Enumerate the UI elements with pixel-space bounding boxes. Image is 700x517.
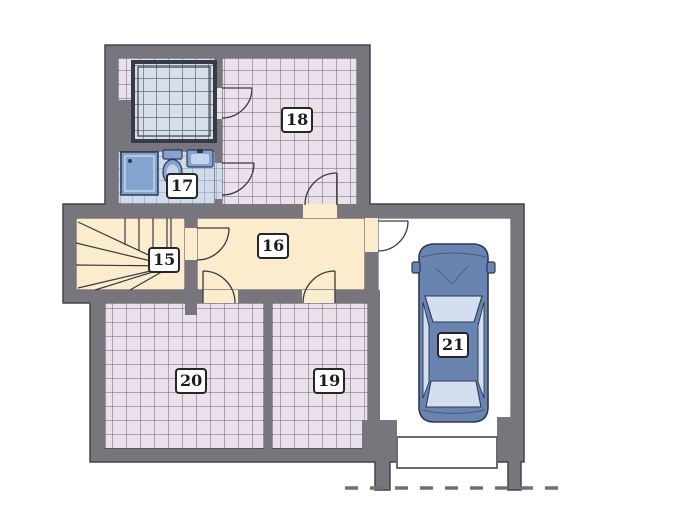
room-label-16: 16: [257, 233, 289, 259]
wall-segment: [63, 218, 76, 290]
car-rear-window: [426, 381, 481, 407]
wall-segment: [185, 260, 197, 290]
wall-segment: [238, 290, 302, 303]
room-label-17: 17: [166, 173, 198, 199]
wall-segment: [497, 450, 524, 462]
room-number: 15: [153, 252, 175, 268]
wall-segment: [511, 218, 524, 450]
opening-17-18: [215, 163, 222, 199]
wall-segment: [215, 151, 222, 163]
wall-stub: [508, 462, 521, 490]
wall-segment: [337, 204, 524, 218]
room-label-20: 20: [175, 368, 207, 394]
room-number: 18: [286, 112, 308, 128]
wall-segment: [63, 204, 303, 218]
floor-plan: 15 16 17 18 19 20 21: [0, 0, 700, 517]
sauna: [133, 62, 215, 141]
wall-segment: [185, 218, 197, 228]
room-label-15: 15: [148, 247, 180, 273]
shower-icon: [121, 152, 158, 195]
room-label-21: 21: [437, 332, 469, 358]
wall-segment: [264, 303, 272, 449]
room-number: 17: [171, 178, 193, 194]
wall-segment: [63, 290, 203, 303]
room-number: 20: [180, 373, 202, 389]
wall-segment: [365, 252, 378, 290]
wall-segment: [90, 449, 397, 462]
wall-segment: [357, 58, 370, 205]
room-number: 19: [318, 373, 340, 389]
wall-segment: [90, 303, 105, 449]
sauna-cabin: [133, 62, 215, 141]
wall-segment: [105, 45, 370, 58]
room-number: 16: [262, 238, 284, 254]
opening-16-19: [302, 290, 335, 303]
opening-16-garage: [365, 218, 378, 252]
car-windshield: [425, 296, 482, 322]
wall-segment: [335, 290, 380, 303]
wall-segment: [185, 303, 197, 315]
wall-stub: [375, 462, 390, 490]
car-mirror-right: [487, 262, 495, 273]
room-label-19: 19: [313, 368, 345, 394]
wall-segment: [362, 420, 397, 450]
washbasin-icon: [187, 149, 213, 167]
room-label-18: 18: [281, 107, 313, 133]
opening-18-16: [303, 204, 337, 218]
wall-segment: [368, 303, 380, 420]
garage-door: [397, 437, 497, 468]
car-mirror-left: [412, 262, 420, 273]
wall-segment: [497, 417, 511, 450]
opening-15-16: [185, 228, 197, 260]
floor-plan-drawing: [0, 0, 700, 517]
room-number: 21: [442, 337, 464, 353]
